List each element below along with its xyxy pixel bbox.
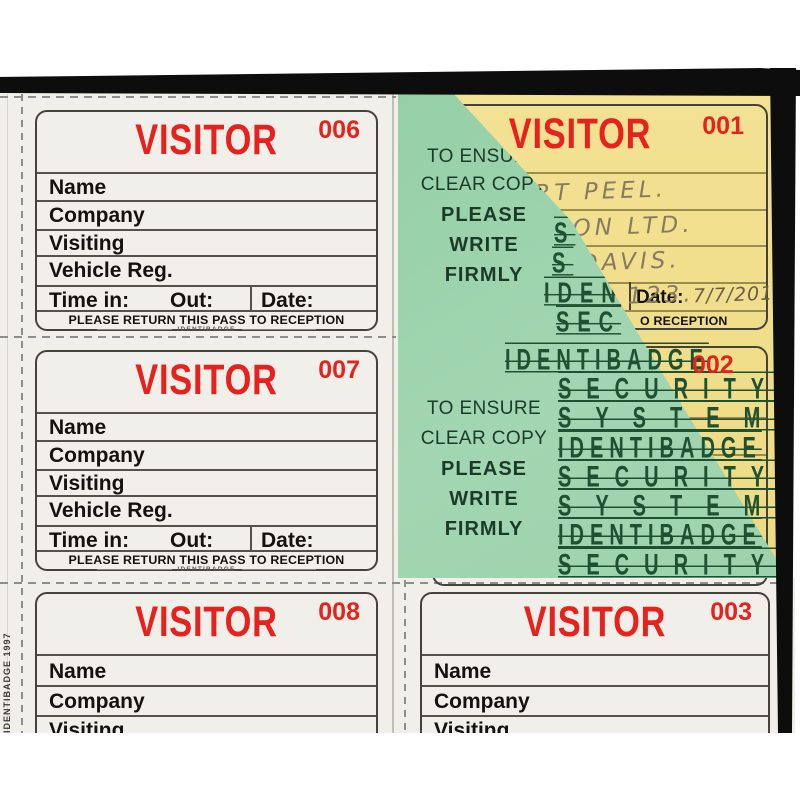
instruction-line: WRITE (398, 234, 570, 257)
pass-title: VISITOR (71, 356, 342, 405)
security-print-row: SECURITY (558, 549, 779, 584)
handwritten-date: 7/7/201 (693, 283, 774, 308)
pass-title: VISITOR (71, 116, 342, 165)
rule-line (37, 654, 376, 656)
rule-line (37, 412, 376, 414)
pass-number: 006 (318, 116, 360, 145)
cell-divider (250, 525, 252, 552)
company-label: Company (434, 690, 530, 714)
brand-dash (97, 329, 172, 330)
edge-copyright-note: IDENTIBADGE 1997 (2, 644, 18, 733)
rule-line (37, 255, 376, 257)
instruction-line: CLEAR COPY (398, 428, 570, 450)
rule-line (37, 440, 376, 442)
rule-line (37, 685, 376, 687)
instruction-line: WRITE (398, 488, 570, 511)
visiting-label: Visiting (49, 472, 124, 496)
rule-line (422, 715, 768, 717)
rule-line (37, 715, 376, 717)
perforation-line-horizontal (0, 96, 396, 98)
company-label: Company (49, 204, 145, 228)
photo-area: VISITOR 006 Name Company Visiting Vehicl… (0, 0, 800, 733)
instruction-line: TO ENSURE (398, 398, 570, 420)
company-label: Company (49, 690, 145, 714)
cell-divider (250, 285, 252, 312)
name-label: Name (49, 176, 106, 200)
visitor-pass-007: VISITOR 007 Name Company Visiting Vehicl… (35, 350, 378, 571)
vehicle-reg-label: Vehicle Reg. (49, 499, 173, 523)
pass-number: 007 (318, 356, 360, 385)
brand-text: IDENTIBADGE (178, 566, 236, 573)
name-label: Name (49, 660, 106, 684)
pass-title: VISITOR (71, 598, 342, 647)
rule-line (37, 469, 376, 471)
book-cover-top-edge (0, 68, 800, 96)
security-print-fragment: S (552, 248, 573, 281)
return-notice: PLEASE RETURN THIS PASS TO RECEPTION (37, 553, 376, 567)
security-print-fragment: S (554, 218, 575, 251)
security-print-fragment: SEC (556, 307, 621, 340)
rule-line (37, 550, 376, 552)
vehicle-reg-label: Vehicle Reg. (49, 259, 173, 283)
company-label: Company (49, 444, 145, 468)
pass-title: VISITOR (457, 598, 734, 647)
pass-number: 002 (692, 351, 734, 380)
rule-line (422, 685, 768, 687)
return-notice-fragment: O RECEPTION (640, 314, 728, 328)
name-label: Name (49, 416, 106, 440)
pad-right-edge (392, 94, 394, 733)
brand-row: IDENTIBADGE (97, 566, 316, 573)
instruction-line: PLEASE (398, 204, 570, 227)
visitor-pass-003: VISITOR 003 Name Company Visiting (420, 592, 770, 733)
rule-line (37, 495, 376, 497)
visiting-label: Visiting (49, 719, 124, 733)
pass-number: 001 (702, 112, 744, 141)
rule-line (422, 654, 768, 656)
rule-line (37, 200, 376, 202)
instruction-line: FIRMLY (398, 518, 570, 541)
visitor-pass-008: VISITOR 008 Name Company Visiting (35, 592, 378, 733)
brand-dash (242, 569, 317, 570)
perforation-line-vertical (404, 580, 406, 733)
pass-number: 003 (710, 598, 752, 627)
brand-dash (242, 329, 317, 330)
visiting-label: Visiting (49, 232, 124, 256)
rule-line (37, 525, 376, 527)
brand-text: IDENTIBADGE (178, 326, 236, 333)
visiting-label: Visiting (434, 719, 509, 733)
visitor-badge-book-photo: VISITOR 006 Name Company Visiting Vehicl… (0, 0, 800, 800)
rule-line (37, 229, 376, 231)
pass-number: 008 (318, 598, 360, 627)
visitor-pass-006: VISITOR 006 Name Company Visiting Vehicl… (35, 110, 378, 331)
return-notice: PLEASE RETURN THIS PASS TO RECEPTION (37, 313, 376, 327)
perforation-line-vertical (21, 94, 23, 733)
rule-line (37, 285, 376, 287)
brand-dash (97, 569, 172, 570)
perforation-line-horizontal (0, 336, 396, 338)
rule-line (37, 310, 376, 312)
instruction-line: PLEASE (398, 458, 570, 481)
brand-row: IDENTIBADGE (97, 326, 316, 333)
name-label: Name (434, 660, 491, 684)
rule-line (37, 172, 376, 174)
